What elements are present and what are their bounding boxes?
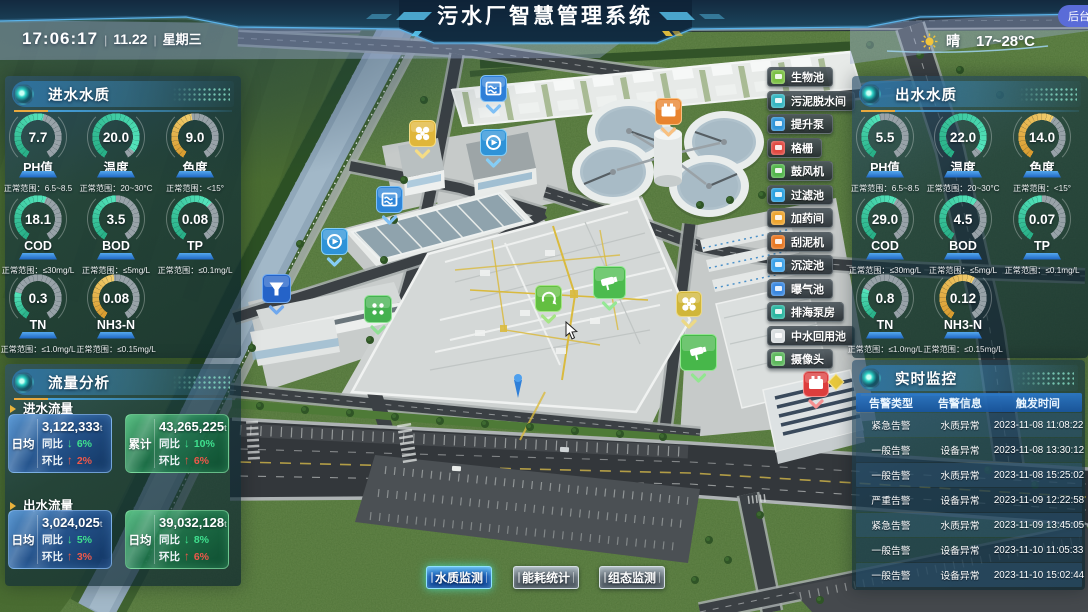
svg-text:污水厂智慧管理系统: 污水厂智慧管理系统: [437, 4, 653, 28]
